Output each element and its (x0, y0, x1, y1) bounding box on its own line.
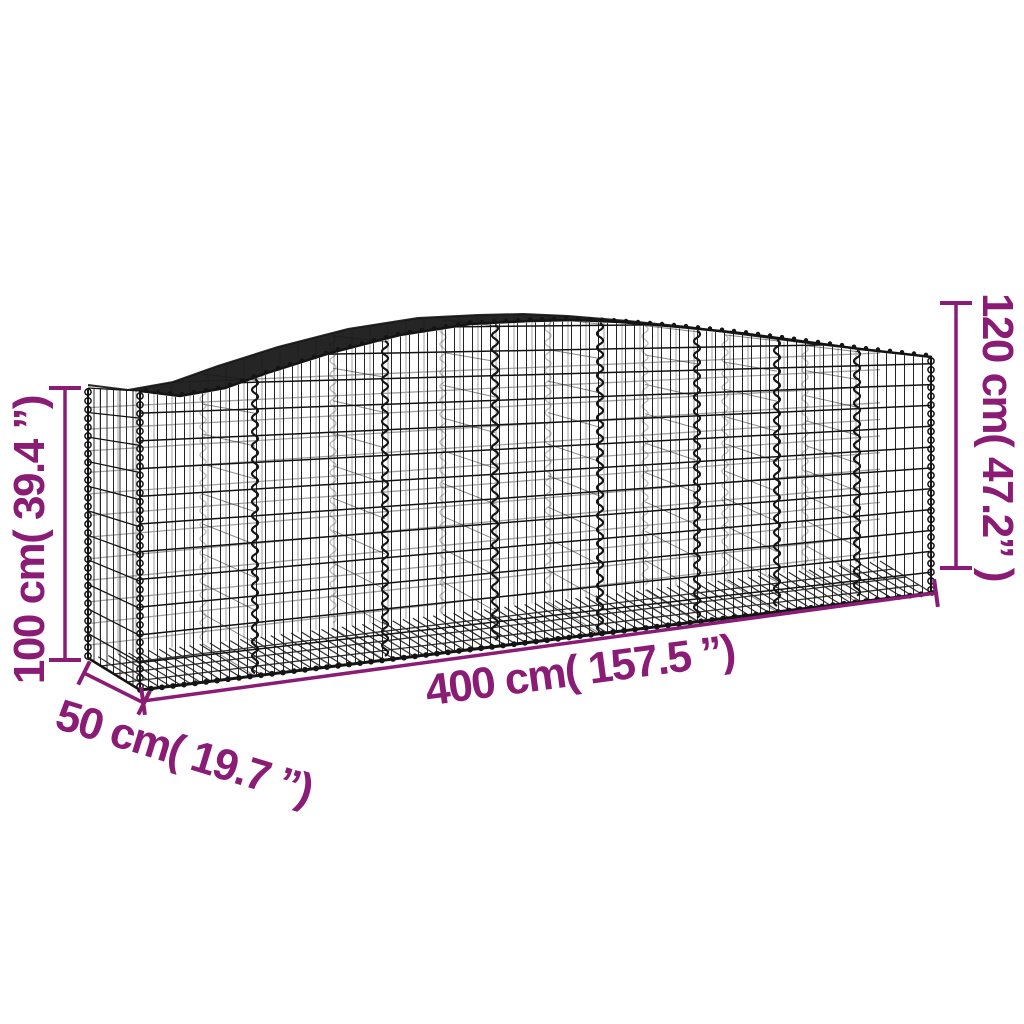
height-right-dimension-label: 120 cm( 47.2” ) (975, 293, 1019, 581)
height-left-dimension-label: 100 cm( 39.4 ”) (8, 396, 52, 684)
gabion-basket-illustration (0, 0, 1024, 1024)
product-dimension-diagram: 100 cm( 39.4 ”) 120 cm( 47.2” ) 400 cm( … (0, 0, 1024, 1024)
